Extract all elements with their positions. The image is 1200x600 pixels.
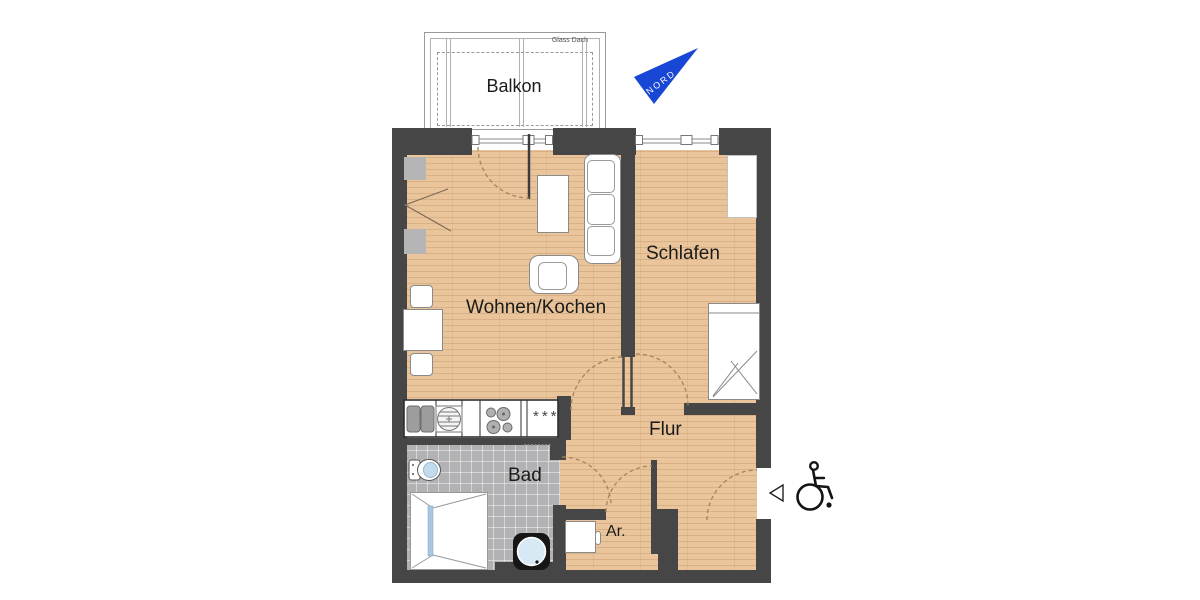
dining-table — [403, 309, 443, 351]
wall-bottom — [392, 570, 771, 583]
balcony-label: Balkon — [424, 76, 604, 97]
wall-ar-right-thin — [651, 460, 657, 509]
kitchen-counter-area — [404, 399, 558, 438]
glass-roof-note: Glass Dach — [536, 37, 588, 44]
bed — [708, 303, 760, 400]
washing-machine-handle — [595, 531, 601, 545]
wall-right-upper — [756, 128, 771, 468]
wall-ar-step — [658, 554, 678, 571]
wheelchair-icon — [798, 462, 833, 509]
wall-kitchen-stub — [557, 396, 571, 440]
wardrobe — [727, 155, 757, 218]
wall-bad-top — [404, 438, 560, 445]
wall-top-middle — [553, 128, 636, 155]
wall-cabinet — [404, 157, 426, 180]
wall-ar-top — [562, 509, 606, 520]
north-arrow-icon: NORD — [634, 48, 698, 104]
side-table — [537, 175, 569, 233]
wall-washbasin-step — [495, 562, 558, 571]
chair — [410, 353, 433, 376]
chair — [410, 285, 433, 308]
room-label-schlafen: Schlafen — [646, 243, 720, 265]
north-label: NORD — [644, 68, 678, 97]
entrance-marker-icon — [770, 485, 783, 501]
room-label-bad: Bad — [508, 465, 542, 487]
room-label-flur: Flur — [649, 419, 682, 441]
wall-schlafen-bottom — [684, 403, 757, 415]
floor-plan-canvas: Balkon Glass Dach — [0, 0, 1200, 600]
wall-bad-right-stub — [550, 438, 566, 460]
wall-right-lower — [756, 519, 771, 583]
wall-cabinet — [404, 229, 426, 254]
schlafen-window — [636, 136, 720, 145]
wall-wohnen-schlafen-cap — [621, 407, 635, 415]
sofa-cushion — [587, 194, 615, 225]
sofa-cushion — [587, 226, 615, 256]
balcony-door-window — [472, 136, 553, 145]
wall-wohnen-schlafen — [621, 155, 635, 357]
room-label-wohnen-kochen: Wohnen/Kochen — [466, 297, 606, 319]
washing-machine — [565, 521, 596, 553]
wall-ar-block — [651, 509, 678, 554]
armchair-seat — [538, 262, 567, 290]
sofa-cushion — [587, 160, 615, 193]
shower — [410, 492, 488, 570]
room-label-ar: Ar. — [606, 523, 626, 541]
wall-left — [392, 128, 407, 583]
